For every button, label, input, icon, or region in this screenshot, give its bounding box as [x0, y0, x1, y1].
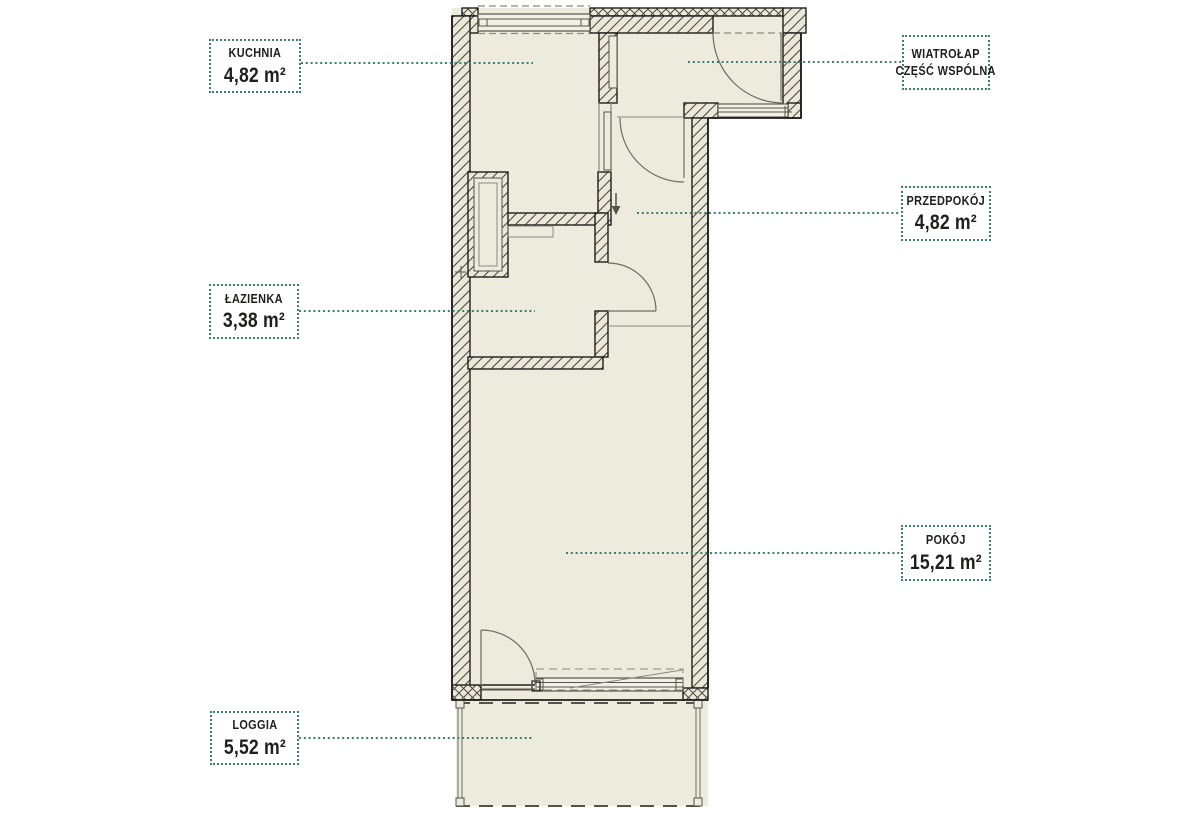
room-name: LOGGIA: [232, 717, 277, 733]
room-label-pokoj: POKÓJ 15,21 m²: [901, 525, 991, 581]
room-name: POKÓJ: [926, 532, 966, 548]
loggia-balustrade-left-top: [456, 700, 464, 708]
loggia-balustrade-right-top: [694, 700, 702, 708]
wall-bottom-left-block: [452, 685, 481, 700]
room-area: 15,21 m²: [910, 551, 982, 574]
floor-plan-page: KUCHNIA 4,82 m² WIATROŁAP CZĘŚĆ WSPÓLNA …: [0, 0, 1200, 813]
wall-bottom-right-block: [683, 688, 708, 700]
wall-bathroom-right-upper: [595, 213, 608, 262]
wall-right: [692, 118, 708, 688]
wall-top-strip-left: [462, 8, 478, 16]
wall-left: [452, 16, 470, 700]
room-name: ŁAZIENKA: [225, 291, 283, 307]
room-label-kuchnia: KUCHNIA 4,82 m²: [209, 39, 301, 93]
loggia-balustrade-right-foot: [694, 798, 702, 806]
wall-top-strip-right: [590, 8, 783, 16]
room-label-lazienka: ŁAZIENKA 3,38 m²: [209, 284, 299, 339]
room-name: WIATROŁAP: [912, 46, 980, 62]
duct-inner: [474, 178, 502, 271]
wall-top-right-corner: [783, 8, 806, 33]
room-label-przedpokoj: PRZEDPOKÓJ 4,82 m²: [901, 186, 991, 241]
room-label-loggia: LOGGIA 5,52 m²: [210, 711, 299, 765]
loggia-balustrade-left-foot: [456, 798, 464, 806]
wall-bathroom-right-lower: [595, 311, 608, 357]
room-label-wiatrolap: WIATROŁAP CZĘŚĆ WSPÓLNA: [902, 35, 990, 90]
wall-wiatrolap-bottom-left: [684, 103, 718, 118]
floor-plan-drawing: [0, 0, 1200, 813]
room-area: 4,82 m²: [224, 64, 286, 87]
kitchen-door-leaf: [604, 112, 611, 170]
wall-wiatrolap-bottom-right: [788, 103, 801, 118]
room-name-line2: CZĘŚĆ WSPÓLNA: [896, 63, 996, 79]
room-area: 4,82 m²: [915, 211, 977, 234]
loggia-floor: [456, 700, 708, 806]
room-name: PRZEDPOKÓJ: [907, 193, 986, 209]
wiatrolap-door-leaf-parked: [609, 36, 617, 88]
wall-top-middle: [590, 16, 713, 33]
wall-bathroom-bottom: [468, 357, 603, 369]
room-area: 3,38 m²: [223, 309, 285, 332]
duct-detail: [474, 178, 502, 271]
wall-bathroom-top: [503, 213, 603, 225]
room-name: KUCHNIA: [229, 45, 282, 61]
room-area: 5,52 m²: [224, 736, 286, 759]
wiatrolap-window: [718, 104, 792, 118]
